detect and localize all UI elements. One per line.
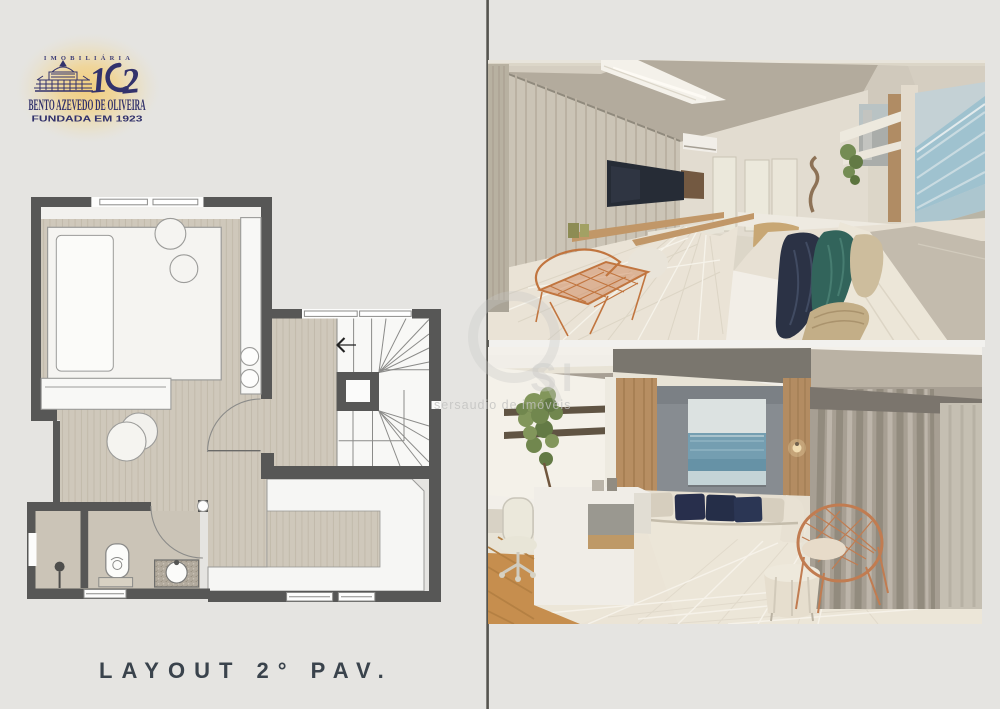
svg-text:sersaudio de imóveis: sersaudio de imóveis <box>434 398 571 412</box>
svg-text:BENTO AZEVEDO DE OLIVEIRA: BENTO AZEVEDO DE OLIVEIRA <box>29 97 146 114</box>
svg-text:FUNDADA EM 1923: FUNDADA EM 1923 <box>32 115 144 124</box>
svg-text:LAYOUT 2° PAV.: LAYOUT 2° PAV. <box>99 658 393 683</box>
